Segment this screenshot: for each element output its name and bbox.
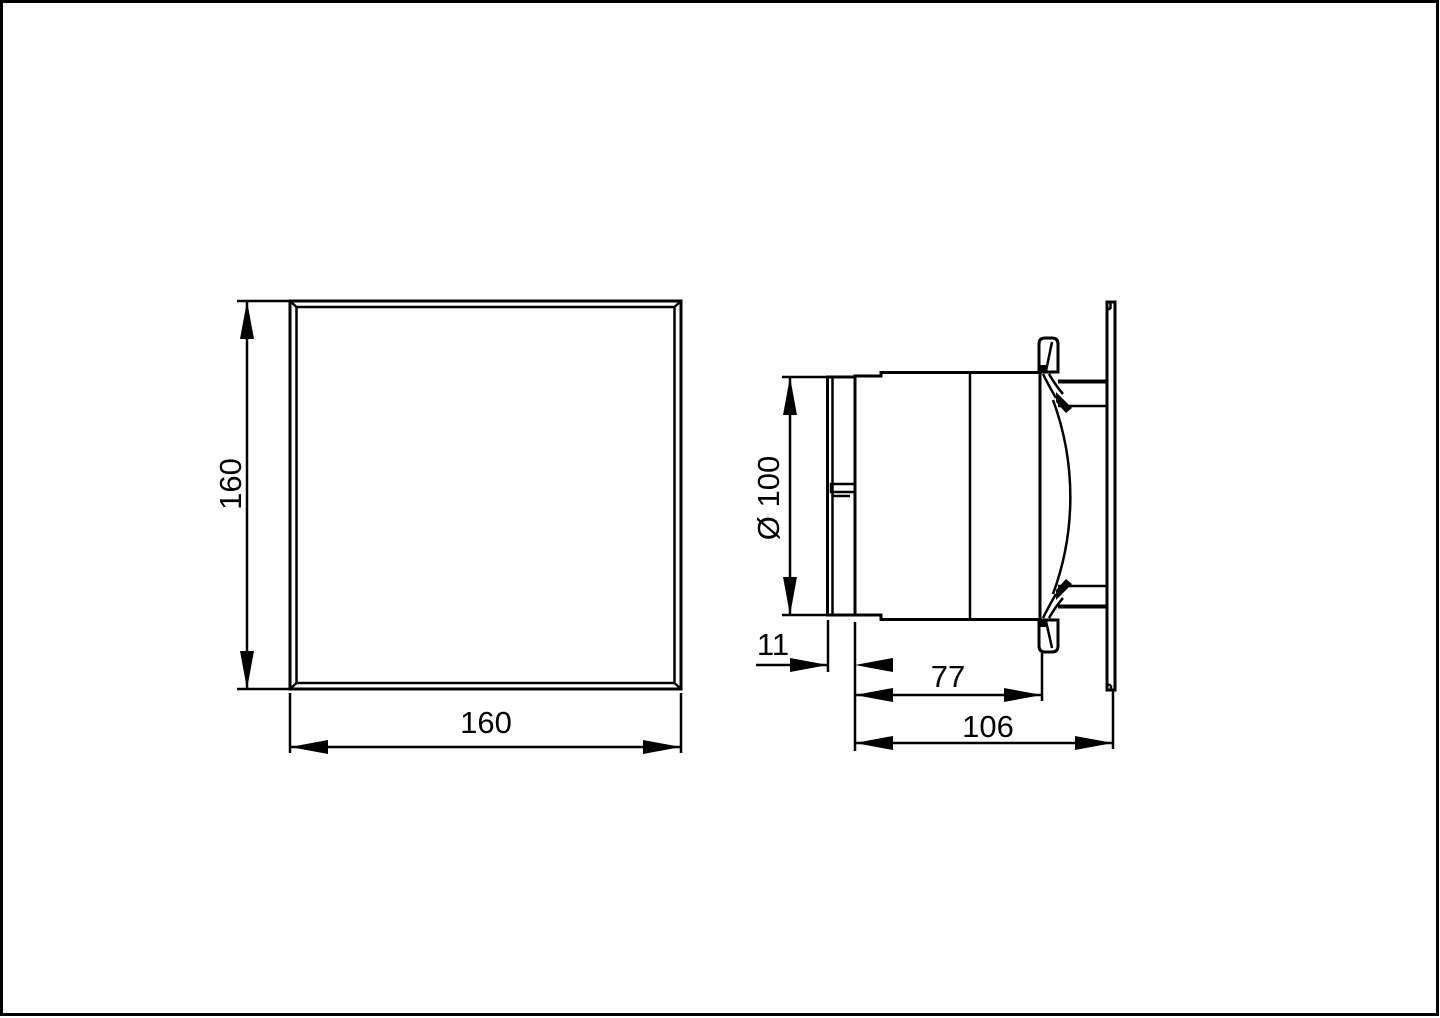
arrowhead-left bbox=[855, 736, 893, 750]
arrowhead-right bbox=[643, 740, 681, 754]
bracket-curve bbox=[1043, 374, 1056, 398]
arrowhead-up bbox=[783, 377, 797, 415]
arrowhead-down bbox=[783, 577, 797, 615]
panel-edge-outline bbox=[1107, 302, 1115, 690]
technical-drawing-canvas: 160 160 bbox=[0, 0, 1440, 1018]
arrowhead-right bbox=[1075, 736, 1113, 750]
arrowhead-left bbox=[290, 740, 328, 754]
dimension-label-duct-protrusion: 11 bbox=[757, 627, 789, 662]
dimension-label-overall-depth: 106 bbox=[962, 709, 1014, 744]
dimension-label-duct-diameter: Ø 100 bbox=[751, 456, 786, 540]
front-height-dimension: 160 bbox=[213, 301, 290, 689]
overall-depth-dimension: 106 bbox=[855, 690, 1113, 750]
panel-clips bbox=[1058, 382, 1107, 607]
dimension-label-front-height: 160 bbox=[213, 458, 248, 510]
bracket-junction-top bbox=[1039, 365, 1047, 372]
front-width-dimension: 160 bbox=[290, 693, 681, 754]
bracket-junction-bottom bbox=[1039, 620, 1047, 627]
arrowhead-up bbox=[240, 301, 254, 339]
dimension-label-body-depth: 77 bbox=[931, 659, 965, 694]
arrowhead-left bbox=[855, 688, 893, 702]
arrowhead-down bbox=[240, 651, 254, 689]
duct-diameter-dimension: Ø 100 bbox=[751, 377, 827, 615]
arrowhead-right bbox=[1004, 688, 1042, 702]
drawing-sheet: 160 160 bbox=[0, 0, 1440, 1018]
bracket-wedge-bottom bbox=[1056, 579, 1072, 600]
front-panel-edge bbox=[1107, 302, 1115, 690]
front-view bbox=[290, 301, 681, 689]
bracket-curve bbox=[1043, 594, 1056, 618]
bracket-wedge-top bbox=[1056, 392, 1072, 413]
dimension-label-front-width: 160 bbox=[460, 705, 512, 740]
fan-body bbox=[855, 373, 1040, 620]
arrowhead-right bbox=[790, 658, 828, 672]
side-view bbox=[828, 302, 1116, 690]
duct-protrusion-dimension: 11 bbox=[756, 620, 893, 751]
front-panel-outline bbox=[290, 301, 681, 689]
arrowhead-left bbox=[855, 658, 893, 672]
impeller-cone-arc bbox=[1053, 400, 1070, 594]
